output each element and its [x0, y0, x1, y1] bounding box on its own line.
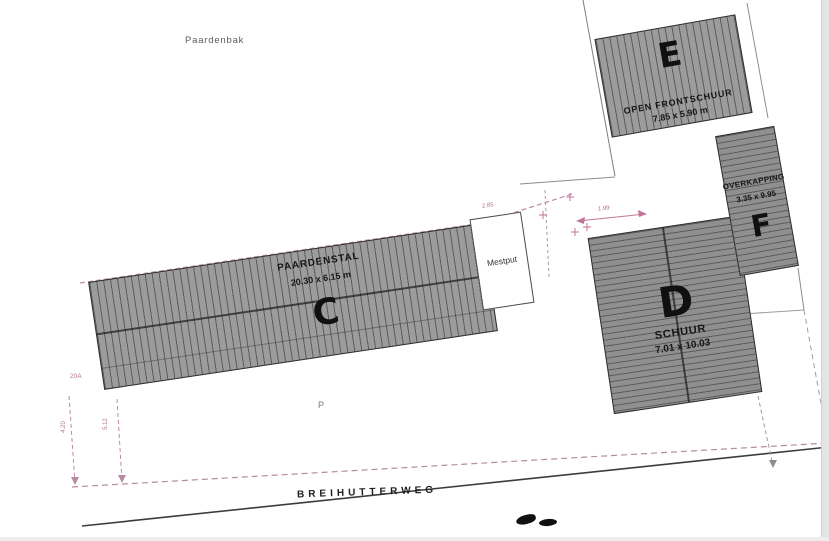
building-d-labels: D SCHUUR 7.01 x 10.03	[637, 223, 711, 356]
dimension-annotation: 20A	[70, 373, 82, 380]
dimension-annotation: 4.20	[61, 421, 67, 433]
building-c-labels: PAARDENSTAL 20.30 x 6.15 m C	[277, 251, 370, 336]
site-plan: PAARDENSTAL 20.30 x 6.15 m C D SCHUUR 7.…	[0, 0, 829, 541]
dimension-annotation: 5.12	[103, 418, 109, 430]
scan-page-edge	[821, 0, 829, 541]
mestput-label: Mestput	[486, 254, 517, 268]
paardenbak-label: Paardenbak	[185, 35, 244, 46]
dimension-annotation: 1.99	[598, 205, 610, 212]
parking-label: P	[318, 400, 324, 410]
building-d-letter: D	[646, 279, 707, 325]
building-e-labels: E OPEN FRONTSCHUUR 7.85 x 5.90 m	[611, 18, 736, 128]
building-e-letter: E	[613, 31, 727, 80]
scan-page-edge	[0, 537, 829, 541]
building-f-letter: F	[728, 207, 794, 244]
